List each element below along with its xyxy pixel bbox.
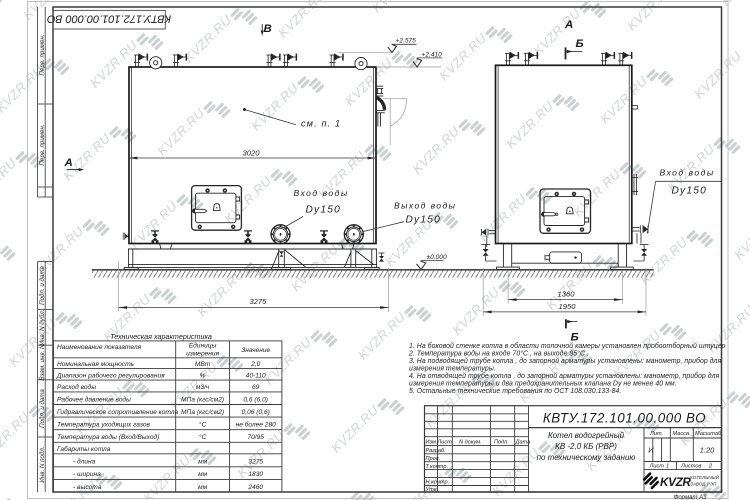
svg-text:см. п. 1: см. п. 1 (301, 119, 341, 129)
svg-text:Температура уходящих газов: Температура уходящих газов (57, 421, 150, 429)
svg-text:КВ -2,0 КБ (РВР): КВ -2,0 КБ (РВР) (555, 442, 617, 451)
svg-text:Т.контр.: Т.контр. (426, 464, 449, 470)
svg-text:0,6 (6,0): 0,6 (6,0) (243, 396, 268, 403)
svg-text:Гидравлическое сопротивление к: Гидравлическое сопротивление котла (57, 408, 178, 416)
svg-text:Перв. примен.: Перв. примен. (39, 34, 46, 75)
svg-text:МПа (кгс/см2): МПа (кгс/см2) (181, 396, 224, 403)
svg-text:измерения температуры.: измерения температуры. (409, 366, 496, 373)
svg-text:Значение: Значение (241, 347, 270, 354)
svg-text:Дата: Дата (515, 440, 531, 446)
svg-text:Dy150: Dy150 (406, 215, 441, 226)
svg-text:1950: 1950 (559, 302, 577, 311)
svg-text:Утв.: Утв. (425, 487, 439, 493)
svg-text:Б: Б (576, 38, 584, 50)
svg-text:1360: 1360 (558, 290, 576, 299)
svg-text:КВТУ.172.101.00.000 ВО: КВТУ.172.101.00.000 ВО (543, 411, 706, 426)
svg-text:И: И (648, 446, 654, 455)
svg-text:измерения температуры и два пр: измерения температуры и два предохраните… (409, 380, 677, 388)
svg-text:1: 1 (666, 464, 669, 470)
svg-text:Котел водогрейный: Котел водогрейный (548, 431, 625, 440)
svg-text:0,06 (0,6): 0,06 (0,6) (242, 409, 270, 416)
svg-text:Лист: Лист (649, 464, 665, 470)
svg-text:1. На боковой стенке котла в: 1. На боковой стенке котла в области топ… (409, 342, 726, 350)
svg-text:Dy150: Dy150 (306, 205, 341, 216)
svg-text:- длина: - длина (73, 458, 96, 466)
svg-text:Рабочее давление воды: Рабочее давление воды (57, 395, 131, 403)
svg-text:Подп.: Подп. (494, 440, 509, 446)
svg-text:КОТЕЛЬНЫЙ: КОТЕЛЬНЫЙ (690, 473, 720, 480)
svg-text:мм: мм (198, 471, 208, 478)
svg-text:Масштаб: Масштаб (695, 431, 722, 437)
svg-text:Взам. инв. N: Взам. инв. N (39, 344, 46, 381)
svg-text:- ширина: - ширина (73, 471, 101, 478)
svg-text:%: % (200, 372, 206, 379)
svg-text:Единицы: Единицы (189, 342, 217, 350)
svg-text:Наименование показателя: Наименование показателя (57, 344, 142, 351)
svg-text:N докум.: N докум. (459, 440, 482, 446)
svg-text:KVZR: KVZR (660, 475, 691, 489)
svg-text:А: А (64, 157, 73, 169)
svg-text:2460: 2460 (247, 484, 263, 491)
svg-text:МПа (кгс/см2): МПа (кгс/см2) (181, 409, 224, 416)
svg-text:+2.575: +2.575 (396, 38, 417, 45)
svg-text:°С: °С (199, 433, 207, 441)
svg-text:Номинальная мощность: Номинальная мощность (57, 361, 135, 368)
svg-text:Лит.: Лит. (649, 431, 663, 437)
svg-text:Листов: Листов (680, 464, 701, 470)
svg-text:Подп. и дата: Подп. и дата (39, 389, 46, 428)
svg-text:Габариты котла: Габариты котла (57, 445, 111, 453)
svg-text:Выход воды: Выход воды (394, 200, 456, 210)
svg-text:Разраб.: Разраб. (426, 448, 446, 454)
svg-text:В: В (264, 23, 272, 35)
svg-text:Подп. и дата: Подп. и дата (39, 266, 46, 305)
svg-text:3020: 3020 (243, 149, 261, 158)
svg-text:2. Температура воды на входе: 2. Температура воды на входе 70°С , на в… (408, 350, 589, 358)
svg-text:3275: 3275 (250, 297, 268, 306)
svg-text:не более 280: не более 280 (236, 421, 277, 429)
svg-text:Изм.Лист: Изм.Лист (426, 440, 453, 446)
svg-text:2: 2 (708, 464, 713, 470)
svg-text:по техническому заданию: по техническому заданию (537, 453, 636, 462)
svg-text:Вход воды: Вход воды (294, 188, 349, 198)
svg-text:+2.410: +2.410 (422, 51, 443, 58)
svg-text:Температура воды (Вход/Выход): Температура воды (Вход/Выход) (57, 433, 159, 441)
svg-text:Инв. N подл.: Инв. N подл. (39, 446, 46, 482)
svg-text:3. На подводящей трубе котла: 3. На подводящей трубе котла , до запорн… (409, 357, 721, 365)
svg-text:Диапазон рабочего регулировани: Диапазон рабочего регулирования (56, 371, 165, 379)
svg-text:Инв. N дубл.: Инв. N дубл. (39, 310, 46, 346)
svg-text:Dy150: Dy150 (672, 185, 707, 196)
svg-text:69: 69 (252, 384, 260, 391)
svg-text:Техническая характеристика: Техническая характеристика (110, 332, 212, 341)
svg-text:Вход воды: Вход воды (660, 168, 715, 178)
svg-text:4. На отводящей трубе котла ,: 4. На отводящей трубе котла , до запорно… (409, 372, 720, 380)
svg-text:м3/ч: м3/ч (196, 384, 210, 391)
svg-text:- высота: - высота (73, 484, 102, 491)
svg-text:1:20: 1:20 (700, 446, 715, 455)
svg-text:3275: 3275 (248, 459, 263, 466)
svg-text:мм: мм (198, 459, 208, 466)
svg-text:мм: мм (198, 484, 208, 491)
svg-text:Перв. примен.: Перв. примен. (39, 124, 46, 165)
svg-text:Формат А3: Формат А3 (674, 495, 707, 500)
svg-text:Расход воды: Расход воды (57, 383, 96, 391)
svg-text:70/95: 70/95 (247, 434, 264, 441)
svg-text:2,0: 2,0 (250, 361, 260, 368)
svg-text:Масса: Масса (673, 431, 690, 437)
svg-text:Пров.: Пров. (426, 456, 441, 462)
svg-text:40-110: 40-110 (246, 372, 266, 379)
svg-text:МВт: МВт (195, 361, 211, 368)
svg-text:±0.000: ±0.000 (427, 254, 447, 261)
svg-text:°С: °С (199, 421, 207, 429)
svg-text:5. Остальные технические треб: 5. Остальные технические требования по О… (409, 387, 621, 395)
svg-text:КВТУ.172.101.00.000 ВО: КВТУ.172.101.00.000 ВО (46, 13, 171, 25)
svg-text:А: А (564, 19, 573, 31)
svg-text:Б: Б (571, 331, 579, 343)
svg-text:измерения: измерения (186, 351, 219, 358)
svg-text:Н.контр.: Н.контр. (426, 480, 450, 486)
svg-text:1830: 1830 (248, 471, 263, 478)
svg-text:ЗАВОД РЭП: ЗАВОД РЭП (690, 482, 717, 487)
